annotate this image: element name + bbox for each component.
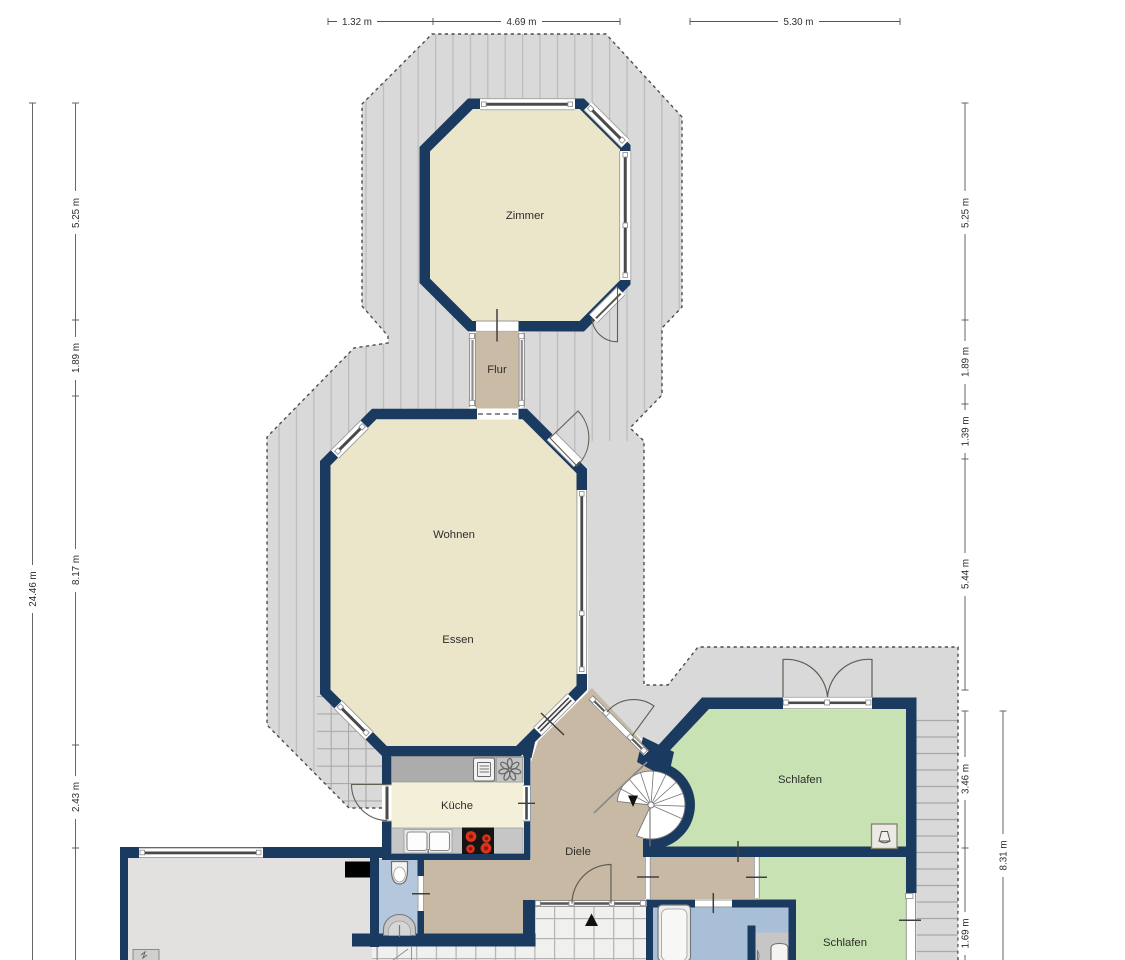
svg-text:Schlafen: Schlafen	[823, 937, 867, 949]
svg-text:1.89 m: 1.89 m	[71, 343, 82, 373]
svg-text:Schlafen: Schlafen	[778, 774, 822, 786]
svg-text:5.25 m: 5.25 m	[961, 198, 972, 228]
svg-text:1.89 m: 1.89 m	[961, 347, 972, 377]
svg-text:8.17 m: 8.17 m	[71, 555, 82, 585]
svg-text:Wohnen: Wohnen	[433, 529, 475, 541]
svg-text:1.39 m: 1.39 m	[961, 417, 972, 447]
svg-text:4.69 m: 4.69 m	[507, 17, 537, 28]
svg-text:5.30 m: 5.30 m	[784, 17, 814, 28]
svg-text:Flur: Flur	[487, 364, 507, 376]
svg-text:24.46 m: 24.46 m	[28, 571, 39, 606]
svg-text:5.44 m: 5.44 m	[961, 559, 972, 589]
svg-text:2.43 m: 2.43 m	[71, 782, 82, 812]
svg-text:Zimmer: Zimmer	[506, 210, 545, 222]
svg-text:Essen: Essen	[442, 634, 473, 646]
svg-text:5.25 m: 5.25 m	[71, 198, 82, 228]
svg-text:1.32 m: 1.32 m	[342, 17, 372, 28]
svg-text:8.31 m: 8.31 m	[999, 841, 1010, 871]
svg-text:3.46 m: 3.46 m	[961, 764, 972, 794]
svg-text:1.69 m: 1.69 m	[961, 919, 972, 949]
svg-text:Diele: Diele	[565, 846, 591, 858]
svg-text:Küche: Küche	[441, 800, 473, 812]
